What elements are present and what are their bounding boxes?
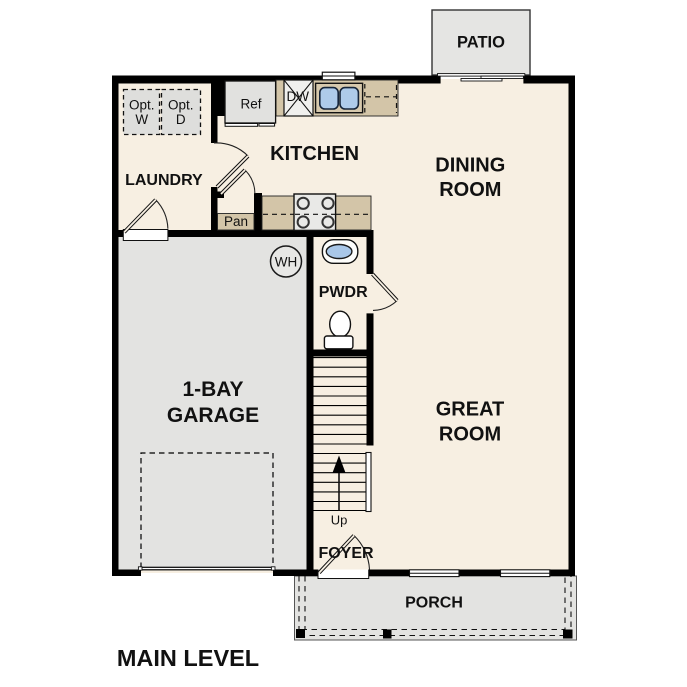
svg-text:ROOM: ROOM (439, 179, 501, 201)
svg-text:ROOM: ROOM (439, 423, 501, 445)
svg-text:DW: DW (287, 89, 310, 104)
svg-text:Ref: Ref (240, 97, 261, 112)
svg-text:W: W (135, 112, 148, 127)
svg-text:Opt.: Opt. (168, 98, 194, 113)
svg-text:FOYER: FOYER (318, 545, 374, 562)
svg-text:MAIN LEVEL: MAIN LEVEL (117, 645, 259, 671)
svg-text:PATIO: PATIO (457, 34, 505, 52)
svg-text:1-BAY: 1-BAY (182, 378, 243, 401)
svg-text:GARAGE: GARAGE (167, 404, 259, 427)
svg-text:DINING: DINING (435, 154, 505, 176)
svg-text:Up: Up (331, 513, 348, 528)
svg-text:LAUNDRY: LAUNDRY (125, 172, 203, 189)
svg-text:Opt.: Opt. (129, 98, 155, 113)
svg-text:Pan: Pan (224, 214, 248, 229)
svg-text:D: D (176, 112, 186, 127)
svg-text:GREAT: GREAT (436, 399, 505, 421)
svg-text:WH: WH (275, 255, 298, 270)
svg-text:PWDR: PWDR (319, 284, 368, 301)
svg-text:KITCHEN: KITCHEN (270, 143, 359, 165)
svg-text:PORCH: PORCH (405, 595, 463, 612)
